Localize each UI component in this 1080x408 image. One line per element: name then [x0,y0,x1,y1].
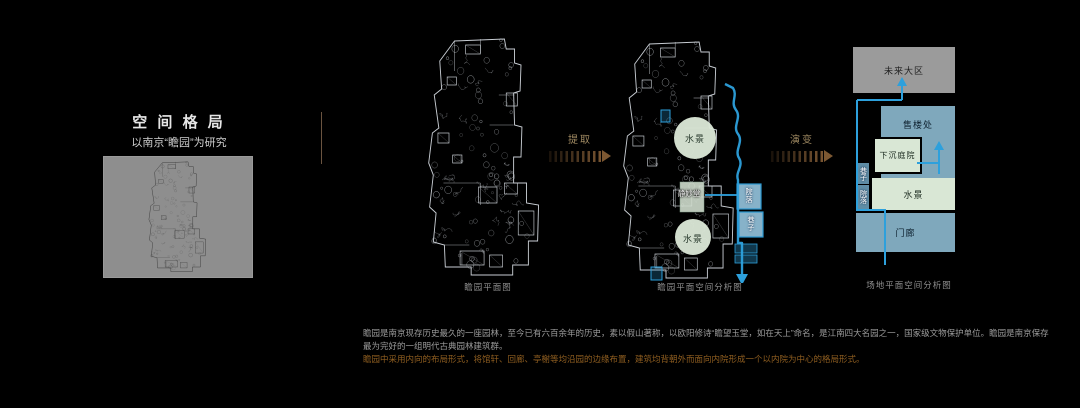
figure3-caption: 场地平面空间分析图 [853,279,965,291]
thumbnail-plan-drawing [147,160,209,274]
figure1-caption: 瞻园平面图 [433,281,543,293]
pavilion-marker-bottom [651,267,662,280]
sunken-courtyard-box: 下沉庭院 [873,137,922,174]
zhanyuan-analysis-figure: 水景 水景 静妙堂 院落 巷子 [620,38,765,283]
alley-label: 巷子 [745,216,755,232]
arrow-head-icon [602,150,611,162]
porch-box: 门廊 [856,213,955,252]
page-subtitle: 以南京“瞻园”为研究 [100,134,258,150]
dashed-arrow-icon [549,151,602,162]
divider-line [321,112,322,164]
extract-arrow-label: 提取 [549,131,611,146]
water-label-top: 水景 [675,132,715,145]
description-line-1: 瞻园是南京现存历史最久的一座园林，至今已有六百余年的历史，素以假山著称，以欧阳修… [363,327,1049,340]
site-diagram-figure: 未来大区 售楼处 下沉庭院 巷子 院落 水景 门廊 [845,40,967,290]
description-line-2: 最为完好的一组明代古典园林建筑群。 [363,340,1049,353]
zhanyuan-analysis-drawing [620,38,765,283]
courtyard-side-box: 院落 [856,185,869,209]
zhanyuan-plan-figure [425,35,545,285]
slide: 空 间 格 局 以南京“瞻园”为研究 瞻园平面图 提取 [0,0,1080,408]
evolve-flow-arrow: 演变 [771,131,833,162]
corridor-segment-1 [735,244,757,253]
evolve-arrow-label: 演变 [771,131,833,146]
courtyard-label: 院落 [743,188,753,204]
figure2-caption: 瞻园平面空间分析图 [630,281,770,293]
arrow-head-icon [824,150,833,162]
water-label-bottom: 水景 [673,232,713,245]
description-paragraph: 瞻园是南京现存历史最久的一座园林，至今已有六百余年的历史，素以假山著称，以欧阳修… [363,327,1049,367]
pavilion-marker-top [661,110,670,122]
extract-flow-arrow: 提取 [549,131,611,162]
jingmiao-hall-label: 静妙堂 [667,188,711,199]
alley-side-box: 巷子 [856,163,869,184]
future-district-box: 未来大区 [853,47,955,93]
water-feature-box: 水景 [872,178,955,210]
corridor-segment-2 [735,255,757,263]
zhanyuan-plan-drawing [425,35,545,280]
description-line-3: 瞻园中采用内向的布局形式，将馆轩、回廊、亭榭等均沿园的边缘布置，建筑均背朝外而面… [363,353,1049,366]
dashed-arrow-icon [771,151,824,162]
page-title: 空 间 格 局 [103,111,255,132]
garden-plan-thumbnail [103,156,253,278]
